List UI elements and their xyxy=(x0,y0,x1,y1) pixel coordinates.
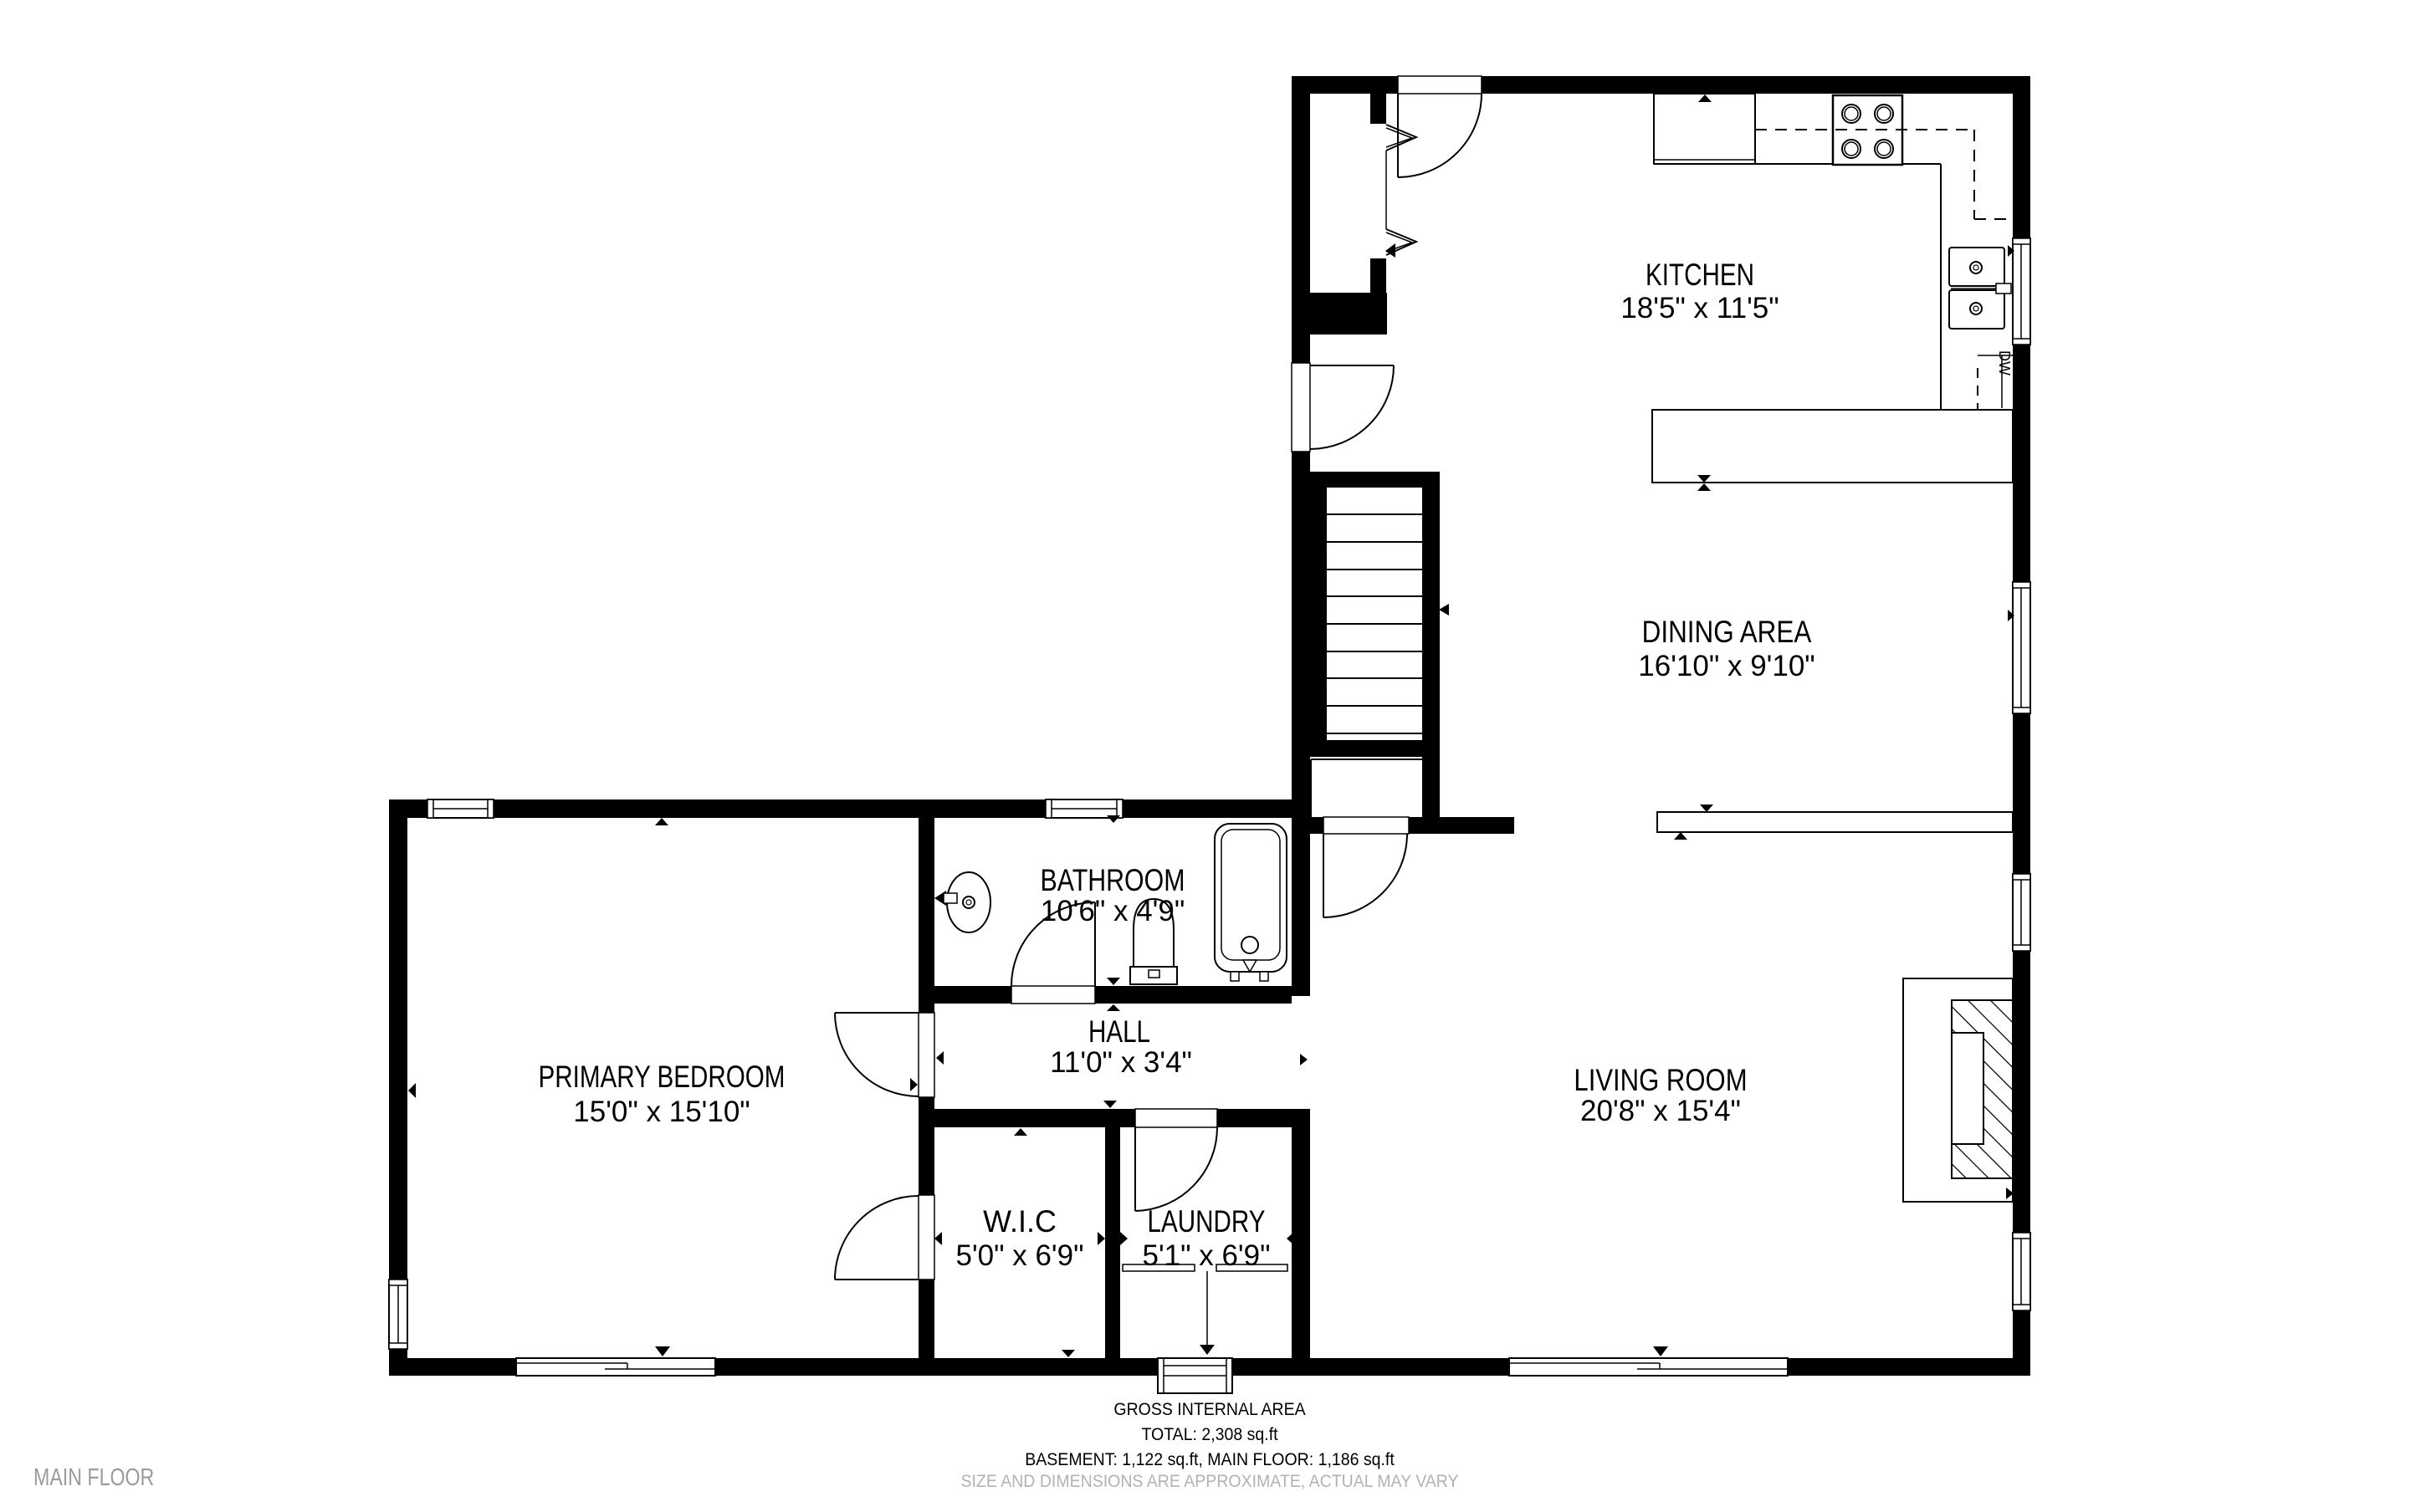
svg-text:LAUNDRY: LAUNDRY xyxy=(1148,1205,1266,1239)
svg-text:SIZE AND DIMENSIONS ARE APPROX: SIZE AND DIMENSIONS ARE APPROXIMATE, ACT… xyxy=(960,1472,1459,1491)
svg-text:5'1" x 6'9": 5'1" x 6'9" xyxy=(1142,1239,1270,1272)
svg-text:10'6" x 4'9": 10'6" x 4'9" xyxy=(1041,895,1185,927)
svg-text:GROSS INTERNAL AREA: GROSS INTERNAL AREA xyxy=(1113,1400,1306,1419)
svg-text:5'0" x 6'9": 5'0" x 6'9" xyxy=(955,1239,1083,1272)
svg-text:15'0" x 15'10": 15'0" x 15'10" xyxy=(573,1096,750,1128)
svg-text:BATHROOM: BATHROOM xyxy=(1040,863,1185,898)
svg-text:MAIN FLOOR: MAIN FLOOR xyxy=(33,1463,154,1490)
svg-text:LIVING ROOM: LIVING ROOM xyxy=(1574,1064,1747,1098)
svg-text:11'0" x 3'4": 11'0" x 3'4" xyxy=(1050,1046,1192,1079)
svg-text:DW: DW xyxy=(1996,350,2013,375)
svg-text:BASEMENT: 1,122 sq.ft, MAIN FL: BASEMENT: 1,122 sq.ft, MAIN FLOOR: 1,186… xyxy=(1025,1450,1395,1469)
svg-text:PRIMARY BEDROOM: PRIMARY BEDROOM xyxy=(539,1060,786,1095)
svg-text:16'10" x 9'10": 16'10" x 9'10" xyxy=(1638,650,1814,682)
svg-text:HALL: HALL xyxy=(1088,1015,1150,1050)
svg-text:20'8" x 15'4": 20'8" x 15'4" xyxy=(1580,1095,1741,1127)
svg-text:TOTAL: 2,308 sq.ft: TOTAL: 2,308 sq.ft xyxy=(1141,1425,1277,1444)
svg-text:W.I.C: W.I.C xyxy=(983,1204,1057,1239)
svg-text:DINING AREA: DINING AREA xyxy=(1642,616,1812,650)
svg-text:18'5" x 11'5": 18'5" x 11'5" xyxy=(1620,292,1779,324)
svg-text:KITCHEN: KITCHEN xyxy=(1646,258,1754,293)
